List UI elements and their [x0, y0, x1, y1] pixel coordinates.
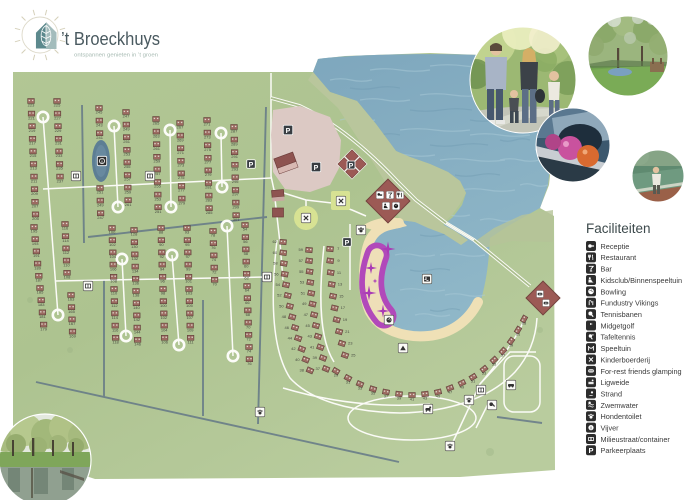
svg-text:37: 37	[315, 366, 320, 371]
svg-text:251: 251	[97, 190, 104, 195]
svg-text:23: 23	[348, 341, 353, 346]
svg-text:55: 55	[299, 269, 304, 274]
svg-text:163: 163	[68, 297, 75, 302]
svg-text:193: 193	[32, 241, 39, 246]
svg-text:185: 185	[37, 290, 44, 295]
svg-text:33: 33	[358, 386, 363, 391]
svg-text:179: 179	[40, 326, 47, 331]
svg-text:279: 279	[205, 172, 212, 177]
svg-text:52: 52	[277, 293, 282, 298]
svg-text:247: 247	[123, 114, 130, 119]
svg-text:Ligweide: Ligweide	[601, 378, 630, 387]
svg-text:42: 42	[291, 346, 296, 351]
svg-text:132: 132	[131, 256, 138, 261]
svg-text:58: 58	[273, 261, 278, 266]
svg-text:Milieustraat/container: Milieustraat/container	[601, 435, 671, 444]
svg-text:138: 138	[133, 293, 140, 298]
svg-text:211: 211	[31, 178, 38, 183]
svg-text:39: 39	[397, 396, 402, 401]
svg-text:245: 245	[96, 110, 103, 115]
svg-text:61: 61	[516, 332, 521, 337]
svg-text:169: 169	[69, 333, 76, 338]
svg-text:297: 297	[232, 192, 239, 197]
svg-text:233: 233	[56, 153, 63, 158]
svg-text:235: 235	[56, 166, 63, 171]
svg-text:41: 41	[410, 397, 415, 402]
svg-text:Kidsclub/Binnenspeeltuin: Kidsclub/Binnenspeeltuin	[601, 276, 683, 285]
svg-text:237: 237	[57, 178, 64, 183]
svg-text:37: 37	[384, 394, 389, 399]
svg-text:255: 255	[154, 184, 161, 189]
svg-text:90: 90	[159, 242, 164, 247]
svg-text:136: 136	[132, 281, 139, 286]
svg-text:253: 253	[124, 152, 131, 157]
svg-text:106: 106	[110, 266, 117, 271]
svg-text:97: 97	[186, 254, 191, 259]
svg-text:Bowling: Bowling	[601, 287, 627, 296]
svg-text:58: 58	[244, 251, 249, 256]
svg-text:283: 283	[205, 197, 212, 202]
svg-text:111: 111	[188, 340, 195, 345]
svg-text:255: 255	[124, 164, 131, 169]
svg-text:78: 78	[211, 233, 216, 238]
svg-text:88: 88	[159, 230, 164, 235]
svg-text:72: 72	[246, 337, 251, 342]
svg-text:130: 130	[131, 244, 138, 249]
svg-text:116: 116	[62, 226, 69, 231]
svg-text:54: 54	[275, 282, 280, 287]
svg-text:253: 253	[154, 196, 161, 201]
svg-text:299: 299	[232, 204, 239, 209]
svg-text:63: 63	[522, 321, 527, 326]
svg-text:’t Broeckhuys: ’t Broeckhuys	[61, 29, 160, 49]
svg-text:59: 59	[509, 343, 514, 348]
svg-text:62: 62	[272, 239, 277, 244]
svg-text:209: 209	[31, 191, 38, 196]
svg-text:165: 165	[68, 309, 75, 314]
svg-text:102: 102	[109, 242, 116, 247]
svg-text:101: 101	[185, 279, 192, 284]
svg-text:45: 45	[436, 394, 441, 399]
svg-text:104: 104	[109, 254, 116, 259]
svg-text:112: 112	[63, 250, 70, 255]
svg-text:221: 221	[28, 115, 35, 120]
svg-text:104: 104	[161, 327, 168, 332]
svg-text:225: 225	[54, 103, 61, 108]
svg-text:51: 51	[471, 379, 476, 384]
svg-text:259: 259	[154, 159, 161, 164]
svg-text:Faciliteiten: Faciliteiten	[586, 221, 651, 236]
svg-text:191: 191	[33, 253, 40, 258]
svg-text:74: 74	[247, 349, 252, 354]
svg-text:223: 223	[28, 103, 35, 108]
svg-text:231: 231	[55, 141, 62, 146]
svg-text:249: 249	[123, 126, 130, 131]
svg-text:64: 64	[245, 288, 250, 293]
svg-text:Bar: Bar	[601, 265, 613, 274]
svg-text:Midgetgolf: Midgetgolf	[601, 321, 636, 330]
svg-text:47: 47	[448, 390, 453, 395]
svg-text:70: 70	[246, 324, 251, 329]
svg-text:49: 49	[460, 385, 465, 390]
svg-text:47: 47	[304, 312, 309, 317]
svg-text:66: 66	[245, 300, 250, 305]
svg-text:273: 273	[178, 163, 185, 168]
svg-text:95: 95	[185, 242, 190, 247]
svg-text:102: 102	[160, 315, 167, 320]
svg-text:247: 247	[97, 215, 104, 220]
svg-text:60: 60	[273, 250, 278, 255]
svg-text:287: 287	[231, 129, 238, 134]
svg-text:109: 109	[187, 327, 194, 332]
svg-text:142: 142	[133, 317, 140, 322]
svg-text:110: 110	[111, 291, 118, 296]
svg-text:134: 134	[132, 268, 139, 273]
svg-text:Speeltuin: Speeltuin	[601, 344, 631, 353]
svg-text:217: 217	[29, 141, 36, 146]
svg-text:P: P	[345, 240, 350, 247]
svg-text:100: 100	[160, 303, 167, 308]
svg-text:For-rest friends glamping: For-rest friends glamping	[601, 367, 682, 376]
svg-text:128: 128	[131, 232, 138, 237]
svg-text:i: i	[101, 159, 102, 164]
svg-text:105: 105	[186, 303, 193, 308]
svg-text:241: 241	[96, 135, 103, 140]
svg-text:72: 72	[212, 269, 217, 274]
svg-text:53: 53	[482, 371, 487, 376]
svg-text:92: 92	[160, 254, 165, 259]
svg-text:Parkeerplaats: Parkeerplaats	[601, 446, 646, 455]
svg-text:107: 107	[186, 315, 193, 320]
svg-text:17: 17	[341, 305, 346, 310]
svg-text:259: 259	[124, 189, 131, 194]
svg-text:140: 140	[133, 305, 140, 310]
svg-text:229: 229	[55, 128, 62, 133]
svg-text:215: 215	[30, 153, 37, 158]
svg-text:ontspannen genieten in ’t groe: ontspannen genieten in ’t groen	[74, 53, 158, 59]
svg-text:144: 144	[134, 329, 141, 334]
svg-text:243: 243	[96, 122, 103, 127]
svg-text:41: 41	[310, 344, 315, 349]
svg-text:108: 108	[110, 279, 117, 284]
svg-text:Zwemwater: Zwemwater	[601, 401, 639, 410]
svg-text:114: 114	[62, 238, 69, 243]
svg-text:285: 285	[206, 210, 213, 215]
svg-text:116: 116	[112, 327, 119, 332]
svg-text:29: 29	[334, 373, 339, 378]
svg-text:21: 21	[345, 329, 350, 334]
svg-text:43: 43	[423, 396, 428, 401]
svg-text:99: 99	[186, 266, 191, 271]
svg-text:46: 46	[284, 325, 289, 330]
svg-text:146: 146	[134, 342, 141, 347]
svg-text:265: 265	[153, 121, 160, 126]
svg-text:44: 44	[288, 336, 293, 341]
svg-text:43: 43	[307, 334, 312, 339]
svg-text:P: P	[588, 446, 593, 455]
svg-text:108: 108	[64, 275, 71, 280]
svg-text:295: 295	[232, 179, 239, 184]
svg-text:53: 53	[300, 280, 305, 285]
svg-text:68: 68	[246, 312, 251, 317]
svg-text:57: 57	[299, 258, 304, 263]
svg-text:Fundustry Vikings: Fundustry Vikings	[601, 299, 659, 308]
svg-text:110: 110	[63, 262, 70, 267]
svg-text:263: 263	[153, 133, 160, 138]
svg-text:31: 31	[346, 380, 351, 385]
svg-text:49: 49	[302, 301, 307, 306]
svg-text:195: 195	[31, 229, 38, 234]
svg-text:112: 112	[111, 303, 118, 308]
svg-text:55: 55	[492, 362, 497, 367]
svg-text:189: 189	[34, 265, 41, 270]
svg-text:94: 94	[160, 266, 165, 271]
svg-text:261: 261	[125, 202, 132, 207]
svg-text:291: 291	[231, 154, 238, 159]
svg-text:62: 62	[244, 276, 249, 281]
svg-text:289: 289	[231, 141, 238, 146]
svg-text:96: 96	[160, 279, 165, 284]
svg-text:269: 269	[177, 137, 184, 142]
svg-text:P: P	[249, 162, 254, 169]
svg-text:103: 103	[186, 291, 193, 296]
svg-text:Tafeltennis: Tafeltennis	[601, 333, 636, 342]
svg-text:56: 56	[274, 271, 279, 276]
svg-text:275: 275	[204, 147, 211, 152]
svg-text:70: 70	[212, 282, 217, 287]
svg-text:38: 38	[299, 368, 304, 373]
svg-text:Vijver: Vijver	[601, 424, 620, 433]
svg-text:Hondentoilet: Hondentoilet	[601, 412, 642, 421]
svg-text:219: 219	[29, 128, 36, 133]
svg-text:19: 19	[343, 317, 348, 322]
svg-text:267: 267	[177, 125, 184, 130]
svg-text:271: 271	[177, 150, 184, 155]
svg-text:25: 25	[351, 352, 356, 357]
svg-text:207: 207	[32, 204, 39, 209]
svg-text:261: 261	[153, 146, 160, 151]
svg-text:Strand: Strand	[601, 389, 623, 398]
svg-text:59: 59	[298, 247, 303, 252]
svg-text:275: 275	[178, 175, 185, 180]
svg-text:54: 54	[243, 227, 248, 232]
svg-text:98: 98	[161, 291, 166, 296]
svg-text:205: 205	[32, 216, 39, 221]
svg-text:57: 57	[501, 353, 506, 358]
svg-text:P: P	[286, 128, 291, 135]
svg-text:60: 60	[244, 263, 249, 268]
svg-text:187: 187	[35, 278, 42, 283]
svg-text:50: 50	[279, 303, 284, 308]
svg-text:P: P	[314, 165, 319, 172]
svg-text:51: 51	[301, 290, 306, 295]
svg-text:181: 181	[39, 314, 46, 319]
svg-text:293: 293	[232, 167, 239, 172]
svg-text:15: 15	[339, 293, 344, 298]
svg-text:251: 251	[155, 209, 162, 214]
svg-text:183: 183	[38, 302, 45, 307]
svg-text:281: 281	[205, 185, 212, 190]
svg-text:277: 277	[178, 188, 185, 193]
svg-text:56: 56	[243, 239, 248, 244]
svg-text:277: 277	[205, 160, 212, 165]
svg-text:Receptie: Receptie	[601, 242, 630, 251]
svg-text:114: 114	[112, 315, 119, 320]
svg-text:76: 76	[211, 245, 216, 250]
svg-text:35: 35	[371, 391, 376, 396]
svg-text:Restaurant: Restaurant	[601, 253, 637, 262]
svg-text:76: 76	[247, 361, 252, 366]
svg-text:167: 167	[69, 321, 76, 326]
svg-text:Kinderboerderij: Kinderboerderij	[601, 355, 651, 364]
svg-text:301: 301	[233, 217, 240, 222]
svg-text:273: 273	[204, 134, 211, 139]
svg-text:13: 13	[338, 282, 343, 287]
svg-text:227: 227	[54, 115, 61, 120]
svg-text:48: 48	[282, 314, 287, 319]
svg-text:100: 100	[109, 230, 116, 235]
svg-text:249: 249	[97, 202, 104, 207]
svg-text:Tennisbanen: Tennisbanen	[601, 310, 642, 319]
svg-text:257: 257	[124, 177, 131, 182]
svg-text:40: 40	[295, 357, 300, 362]
svg-text:93: 93	[185, 230, 190, 235]
svg-text:213: 213	[30, 166, 37, 171]
svg-text:P: P	[349, 163, 354, 170]
svg-text:45: 45	[305, 323, 310, 328]
svg-text:106: 106	[161, 340, 168, 345]
svg-text:279: 279	[178, 200, 185, 205]
svg-text:i: i	[590, 425, 591, 430]
svg-text:39: 39	[312, 355, 317, 360]
svg-text:118: 118	[112, 340, 119, 345]
svg-text:251: 251	[123, 139, 130, 144]
svg-text:74: 74	[212, 257, 217, 262]
svg-text:271: 271	[204, 122, 211, 127]
